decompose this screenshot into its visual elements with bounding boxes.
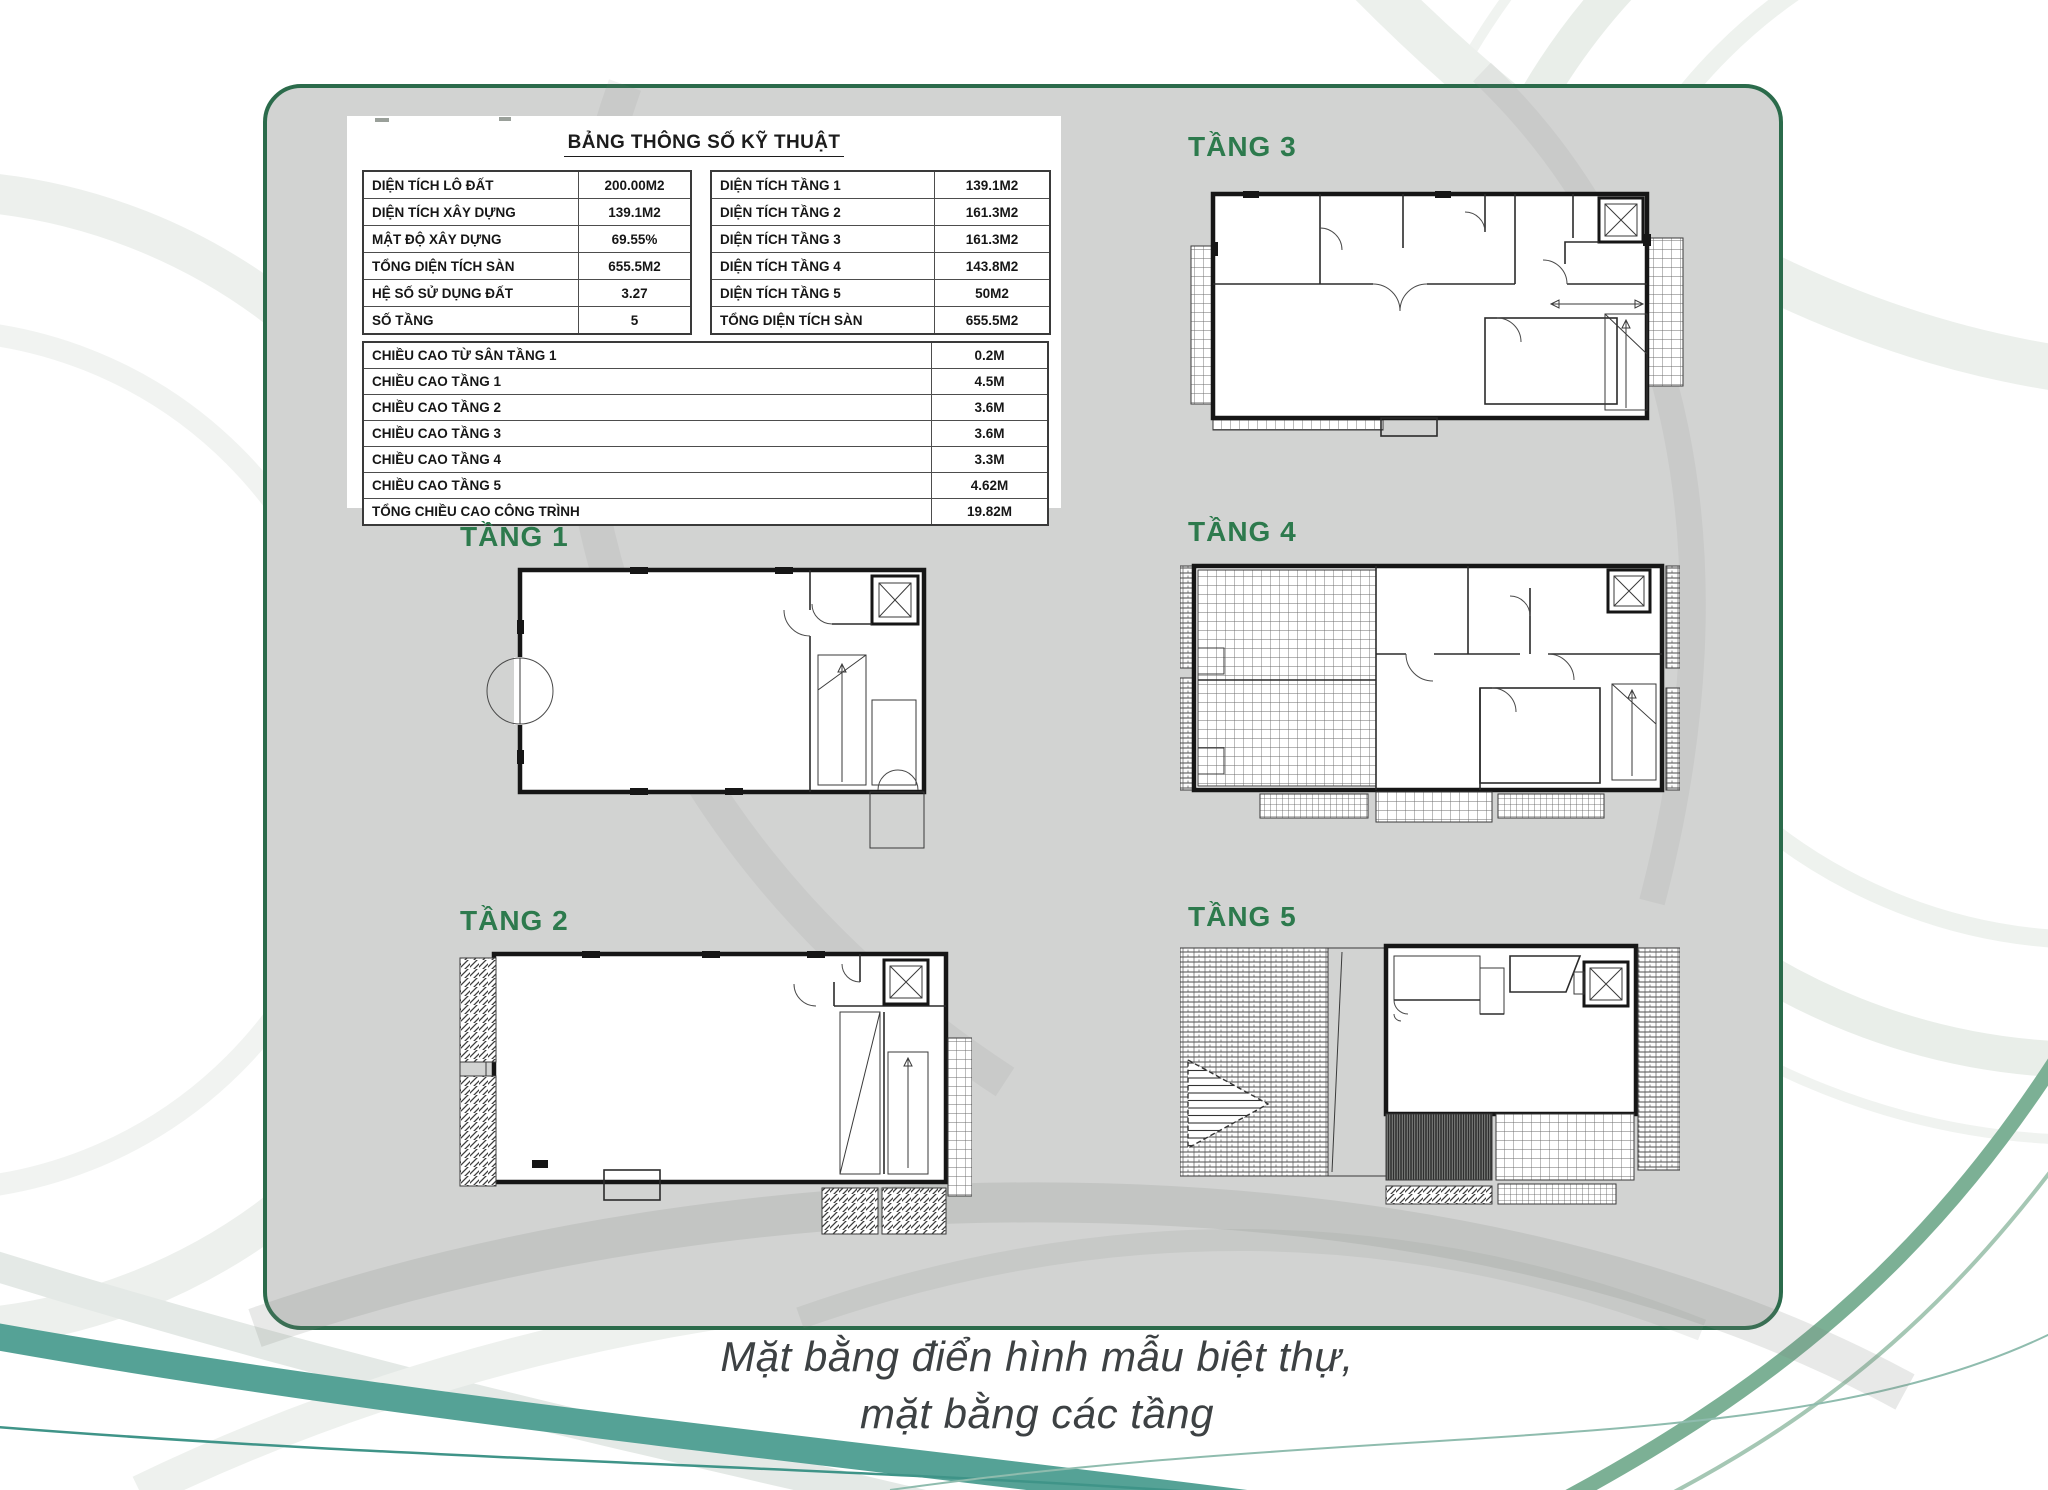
spec-label: DIỆN TÍCH TẦNG 5	[712, 280, 934, 306]
terrace-grid	[1496, 1114, 1634, 1180]
void-dark-area	[1386, 1114, 1492, 1180]
floor-plan-tang-1	[480, 560, 940, 855]
roof-hatch	[1638, 948, 1680, 1170]
spec-value: 3.27	[579, 280, 690, 306]
spec-label: DIỆN TÍCH XÂY DỰNG	[364, 199, 578, 225]
floor-label-tang-3: TẦNG 3	[1188, 131, 1297, 163]
spec-value: 161.3M2	[935, 226, 1049, 252]
roof-hatch	[1180, 948, 1328, 1176]
lower-roof-hatch	[1386, 1186, 1492, 1204]
roof-hatch	[1666, 688, 1680, 790]
lower-roof-hatch	[822, 1188, 878, 1234]
spec-label: TỔNG DIỆN TÍCH SÀN	[364, 253, 578, 279]
floor-label-tang-5: TẦNG 5	[1188, 901, 1297, 933]
floor-plan-tang-4	[1180, 558, 1680, 828]
penthouse-walls	[1386, 946, 1636, 1114]
outer-walls	[494, 954, 946, 1182]
outer-walls	[520, 570, 924, 792]
spec-value: 143.8M2	[935, 253, 1049, 279]
spec-value: 139.1M2	[935, 172, 1049, 198]
spec-value: 0.2M	[932, 343, 1047, 368]
spec-label: DIỆN TÍCH TẦNG 3	[712, 226, 934, 252]
spec-label: TỔNG CHIỀU CAO CÔNG TRÌNH	[364, 499, 931, 524]
porch-step	[1381, 418, 1437, 436]
spec-label: CHIỀU CAO TẦNG 3	[364, 421, 931, 446]
spec-value: 4.5M	[932, 369, 1047, 394]
floor-label-tang-1: TẦNG 1	[460, 521, 569, 553]
spec-label: CHIỀU CAO TẦNG 1	[364, 369, 931, 394]
caption-line-2: mặt bằng các tầng	[512, 1385, 1562, 1442]
spec-value: 5	[579, 307, 690, 333]
spec-value: 655.5M2	[579, 253, 690, 279]
crop-artifact-dash	[499, 117, 511, 121]
spec-label: MẬT ĐỘ XÂY DỰNG	[364, 226, 578, 252]
floor-plan-tang-5	[1180, 942, 1680, 1207]
spec-label: CHIỀU CAO TỪ SÂN TẦNG 1	[364, 343, 931, 368]
spec-value: 655.5M2	[935, 307, 1049, 333]
spec-value: 200.00M2	[579, 172, 690, 198]
spec-table-card: BẢNG THÔNG SỐ KỸ THUẬT DIỆN TÍCH LÔ ĐẤT …	[347, 116, 1061, 508]
spec-label: DIỆN TÍCH TẦNG 1	[712, 172, 934, 198]
planter-strip	[1498, 1184, 1616, 1204]
spec-label: CHIỀU CAO TẦNG 5	[364, 473, 931, 498]
spec-value: 4.62M	[932, 473, 1047, 498]
section-hatch-left	[460, 958, 496, 1186]
rear-patio	[870, 792, 924, 848]
spec-value: 3.6M	[932, 395, 1047, 420]
floor-label-tang-2: TẦNG 2	[460, 905, 569, 937]
planter-strips	[1260, 792, 1604, 822]
spec-label: CHIỀU CAO TẦNG 4	[364, 447, 931, 472]
roof-hatch	[1666, 566, 1680, 668]
spec-value: 3.3M	[932, 447, 1047, 472]
spec-value: 50M2	[935, 280, 1049, 306]
spec-label: SỐ TẦNG	[364, 307, 578, 333]
caption-line-1: Mặt bằng điển hình mẫu biệt thự,	[512, 1328, 1562, 1385]
terrace-grid	[1198, 570, 1376, 786]
elevator-shaft	[1608, 570, 1650, 612]
lower-roof-hatch	[882, 1188, 946, 1234]
height-spec-table: CHIỀU CAO TỪ SÂN TẦNG 1 0.2M CHIỀU CAO T…	[362, 341, 1049, 526]
spec-value: 3.6M	[932, 421, 1047, 446]
spec-label: DIỆN TÍCH LÔ ĐẤT	[364, 172, 578, 198]
floor-area-table: DIỆN TÍCH TẦNG 1 139.1M2 DIỆN TÍCH TẦNG …	[710, 170, 1051, 335]
spec-label: TỔNG DIỆN TÍCH SÀN	[712, 307, 934, 333]
spec-label: HỆ SỐ SỬ DỤNG ĐẤT	[364, 280, 578, 306]
balcony-hatch	[948, 1038, 972, 1196]
floor-plan-tang-3	[1185, 186, 1700, 441]
balcony-hatch	[1191, 246, 1213, 404]
spec-value: 19.82M	[932, 499, 1047, 524]
outer-walls	[1213, 194, 1647, 418]
floor-plan-tang-2	[452, 942, 972, 1242]
spec-label: DIỆN TÍCH TẦNG 4	[712, 253, 934, 279]
page-caption: Mặt bằng điển hình mẫu biệt thự, mặt bằn…	[512, 1328, 1562, 1442]
spec-value: 69.55%	[579, 226, 690, 252]
floor-label-tang-4: TẦNG 4	[1188, 516, 1297, 548]
spec-value: 161.3M2	[935, 199, 1049, 225]
balcony-hatch	[1647, 238, 1683, 386]
site-spec-table: DIỆN TÍCH LÔ ĐẤT 200.00M2 DIỆN TÍCH XÂY …	[362, 170, 692, 335]
gap-strip	[1328, 948, 1386, 1176]
spec-label: CHIỀU CAO TẦNG 2	[364, 395, 931, 420]
crop-artifact-dash	[375, 118, 389, 122]
spec-label: DIỆN TÍCH TẦNG 2	[712, 199, 934, 225]
spec-table-title: BẢNG THÔNG SỐ KỸ THUẬT	[347, 132, 1061, 157]
spec-value: 139.1M2	[579, 199, 690, 225]
